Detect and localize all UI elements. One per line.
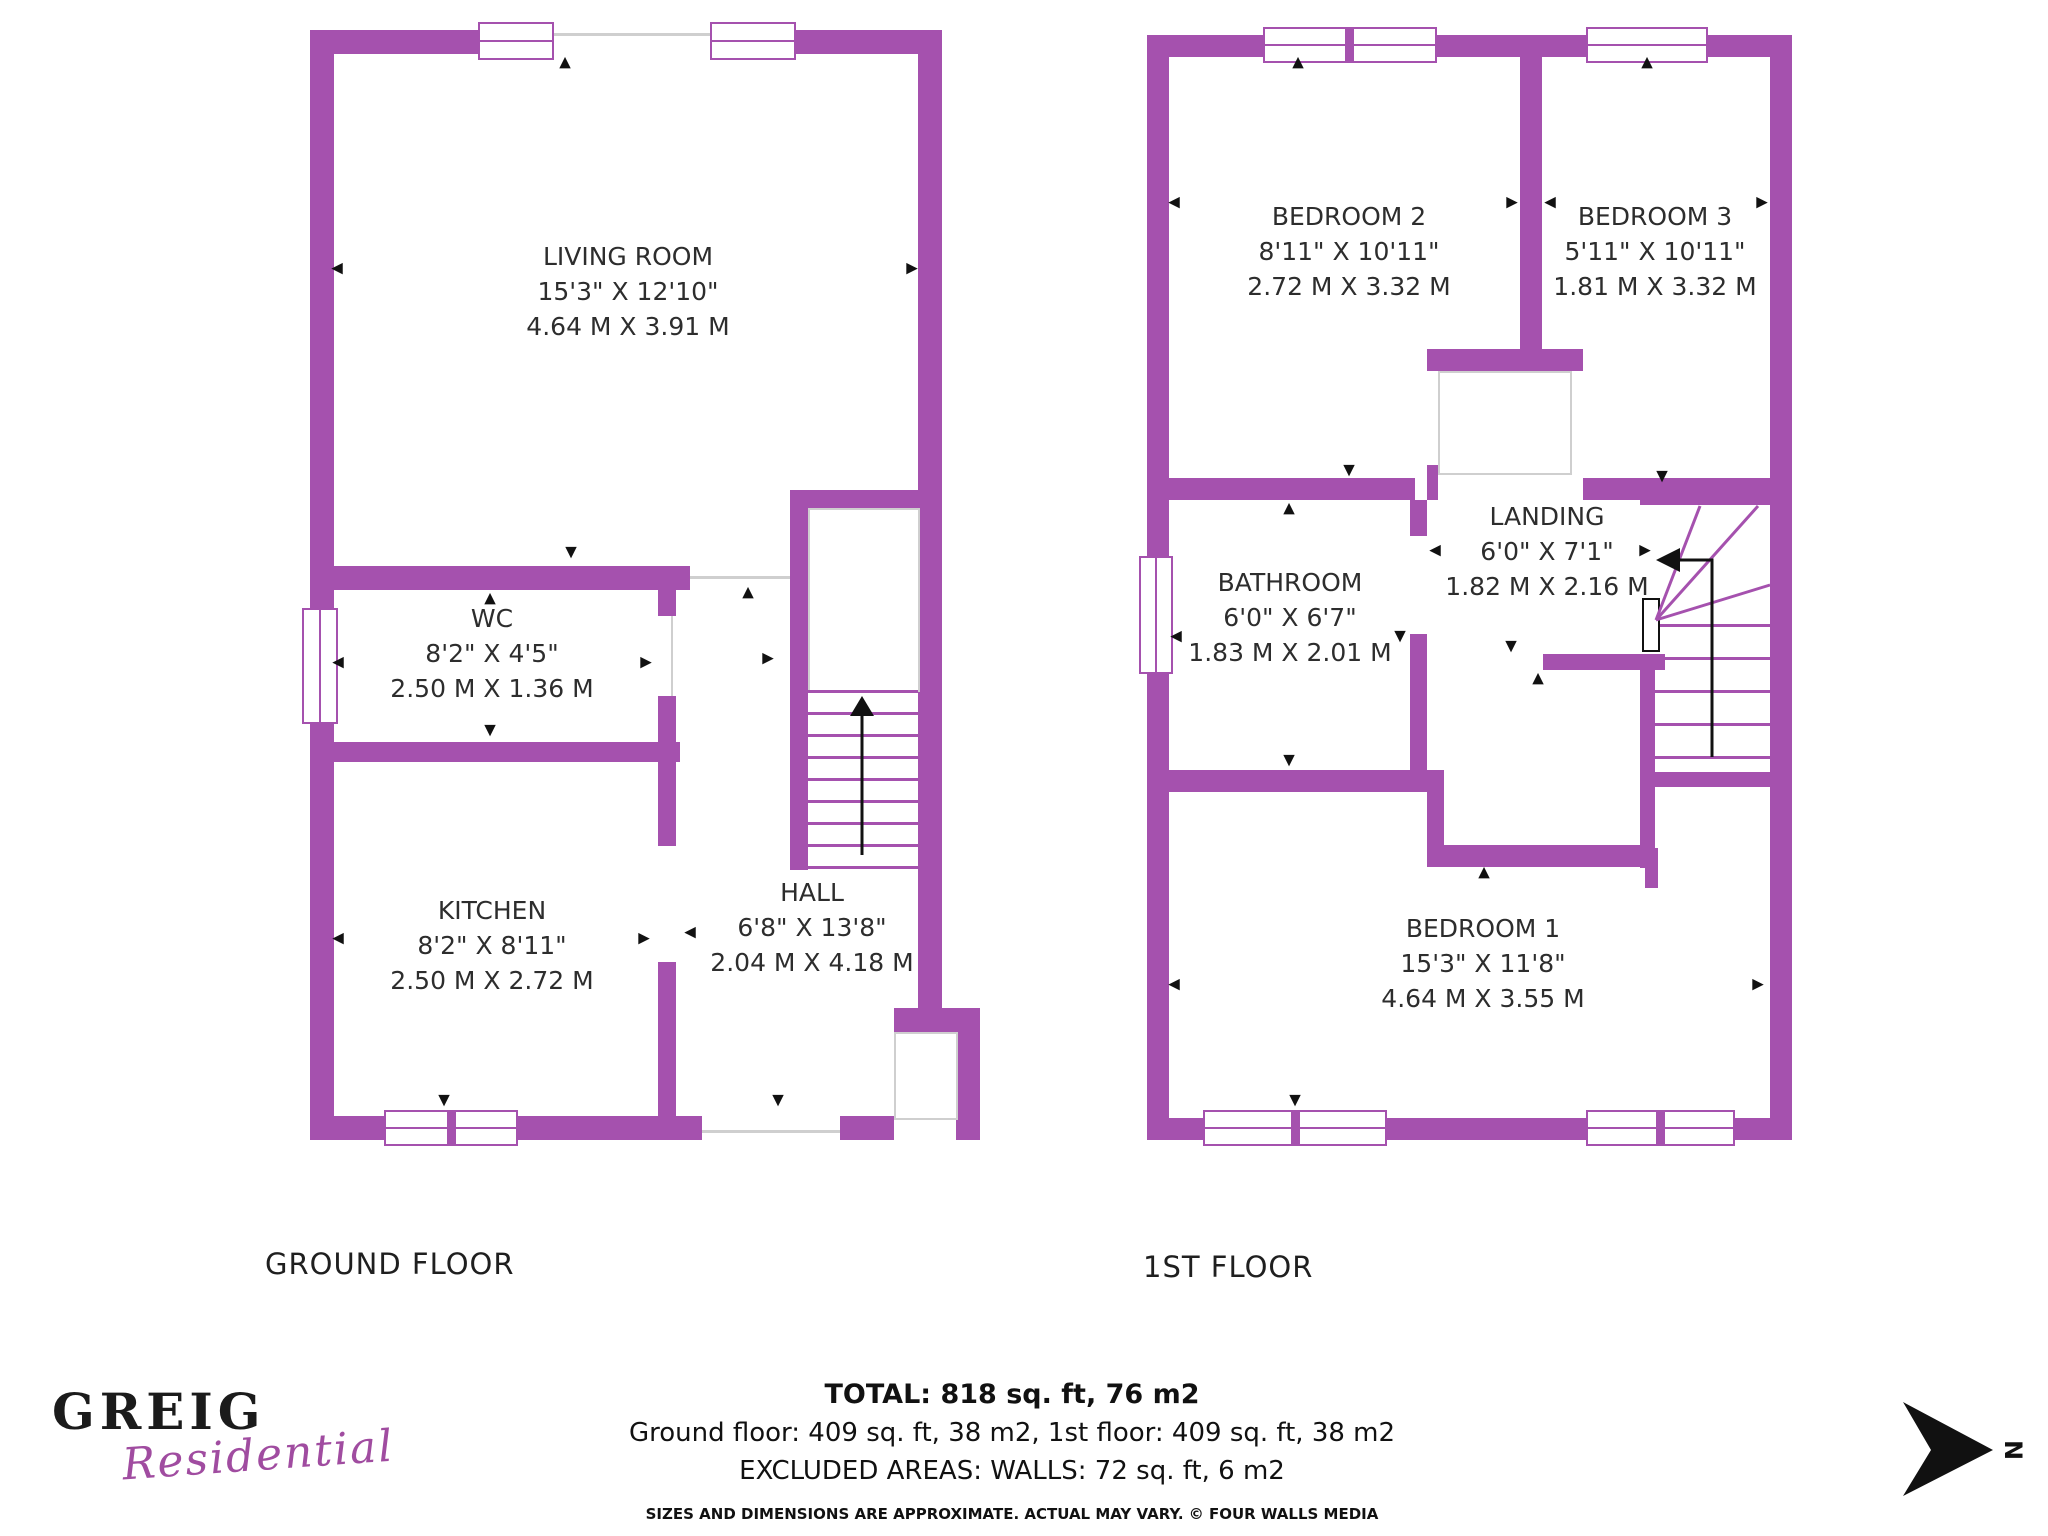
- wall: [1640, 490, 1770, 505]
- stair-tread: [1655, 657, 1770, 660]
- dimension-arrow: ▼: [1394, 629, 1406, 644]
- dimension-arrow: ◀: [332, 655, 344, 670]
- room-dim-metric: 4.64 M X 3.55 M: [1381, 981, 1584, 1016]
- room-name: BEDROOM 1: [1381, 912, 1584, 946]
- room-label-bedroom-3: BEDROOM 3 5'11" X 10'11" 1.81 M X 3.32 M: [1553, 200, 1756, 304]
- window: [384, 1110, 518, 1146]
- dimension-arrow: ▼: [1289, 1093, 1301, 1108]
- dimension-arrow: ▶: [1506, 195, 1518, 210]
- room-name: HALL: [710, 876, 913, 910]
- wall: [658, 590, 676, 616]
- total-area: TOTAL: 818 sq. ft, 76 m2: [629, 1376, 1395, 1414]
- room-label-wc: WC 8'2" X 4'5" 2.50 M X 1.36 M: [390, 602, 593, 706]
- first-floor-label: 1ST FLOOR: [1143, 1250, 1313, 1284]
- dimension-arrow: ▼: [565, 545, 577, 560]
- room-dim-metric: 2.72 M X 3.32 M: [1247, 269, 1450, 304]
- room-dim-metric: 1.83 M X 2.01 M: [1188, 635, 1391, 670]
- room-dim-imperial: 6'0" X 6'7": [1188, 600, 1391, 635]
- wall: [1147, 1118, 1205, 1140]
- wall: [310, 742, 680, 762]
- excluded-areas: EXCLUDED AREAS: WALLS: 72 sq. ft, 6 m2: [629, 1452, 1395, 1490]
- north-arrow-icon: [1895, 1392, 2000, 1502]
- room-label-hall: HALL 6'8" X 13'8" 2.04 M X 4.18 M: [710, 876, 913, 980]
- wall: [310, 566, 690, 590]
- dimension-arrow: ▲: [559, 55, 571, 70]
- wall: [1655, 772, 1770, 787]
- wall: [1385, 1118, 1588, 1140]
- room-label-kitchen: KITCHEN 8'2" X 8'11" 2.50 M X 2.72 M: [390, 894, 593, 998]
- dimension-arrow: ▼: [1505, 639, 1517, 654]
- dimension-arrow: ▲: [1292, 55, 1304, 70]
- dimension-arrow: ▲: [742, 585, 754, 600]
- wall: [1147, 478, 1415, 500]
- room-dim-imperial: 8'2" X 4'5": [390, 636, 593, 671]
- room-label-bedroom-2: BEDROOM 2 8'11" X 10'11" 2.72 M X 3.32 M: [1247, 200, 1450, 304]
- room-name: WC: [390, 602, 593, 636]
- room-dim-metric: 1.81 M X 3.32 M: [1553, 269, 1756, 304]
- dimension-arrow: ◀: [684, 925, 696, 940]
- room-name: LIVING ROOM: [526, 240, 729, 274]
- wall: [658, 696, 676, 846]
- wall: [1770, 35, 1792, 1140]
- wall: [1640, 654, 1655, 868]
- dimension-arrow: ▼: [1343, 463, 1355, 478]
- room-dim-imperial: 8'2" X 8'11": [390, 928, 593, 963]
- dimension-arrow: ◀: [1168, 195, 1180, 210]
- disclaimer: SIZES AND DIMENSIONS ARE APPROXIMATE. AC…: [629, 1504, 1395, 1524]
- stair-tread: [808, 734, 918, 737]
- stair-tread: [808, 844, 918, 847]
- window: [1586, 1110, 1735, 1146]
- room-dim-metric: 4.64 M X 3.91 M: [526, 309, 729, 344]
- wall: [1733, 1118, 1792, 1140]
- room-dim-imperial: 8'11" X 10'11": [1247, 234, 1450, 269]
- room-dim-metric: 2.50 M X 2.72 M: [390, 963, 593, 998]
- wall: [790, 508, 808, 870]
- dimension-arrow: ◀: [1429, 543, 1441, 558]
- wall: [1435, 35, 1588, 57]
- wall: [1427, 465, 1438, 500]
- stair-tread: [808, 756, 918, 759]
- dimension-arrow: ◀: [332, 931, 344, 946]
- window: [1203, 1110, 1387, 1146]
- room-name: BEDROOM 2: [1247, 200, 1450, 234]
- dimension-arrow: ▶: [640, 655, 652, 670]
- wall: [1427, 845, 1655, 867]
- stair-tread: [808, 822, 918, 825]
- wall: [516, 1116, 702, 1140]
- stair-void: [808, 508, 920, 692]
- wall: [1520, 35, 1542, 350]
- dimension-arrow: ▶: [906, 261, 918, 276]
- dimension-arrow: ◀: [1168, 977, 1180, 992]
- stair-tread: [808, 712, 918, 715]
- stair-tread: [1655, 624, 1770, 627]
- dimension-arrow: ▼: [438, 1093, 450, 1108]
- area-summary: TOTAL: 818 sq. ft, 76 m2 Ground floor: 4…: [629, 1376, 1395, 1524]
- wall: [1147, 770, 1427, 792]
- dimension-arrow: ▶: [1752, 977, 1764, 992]
- wall: [1645, 848, 1658, 888]
- porch-interior: [894, 1032, 958, 1120]
- room-dim-metric: 1.82 M X 2.16 M: [1445, 569, 1648, 604]
- wall: [1410, 500, 1427, 536]
- wall: [1427, 349, 1583, 371]
- stair-tread: [808, 778, 918, 781]
- stair-tread: [808, 800, 918, 803]
- stair-tread: [808, 866, 918, 869]
- room-dim-imperial: 15'3" X 12'10": [526, 274, 729, 309]
- dimension-arrow: ▲: [1532, 671, 1544, 686]
- dimension-arrow: ▼: [484, 723, 496, 738]
- room-name: BATHROOM: [1188, 566, 1391, 600]
- stair-bulkhead: [1438, 371, 1572, 475]
- door-line: [671, 616, 673, 696]
- dimension-arrow: ▲: [1478, 865, 1490, 880]
- wall: [918, 30, 942, 1012]
- floor-areas: Ground floor: 409 sq. ft, 38 m2, 1st flo…: [629, 1414, 1395, 1452]
- room-dim-imperial: 6'8" X 13'8": [710, 910, 913, 945]
- dimension-arrow: ▼: [1283, 753, 1295, 768]
- window: [1263, 27, 1437, 63]
- room-dim-metric: 2.50 M X 1.36 M: [390, 671, 593, 706]
- room-label-living-room: LIVING ROOM 15'3" X 12'10" 4.64 M X 3.91…: [526, 240, 729, 344]
- dimension-arrow: ◀: [331, 261, 343, 276]
- door-leaf: [1642, 598, 1660, 652]
- dimension-arrow: ▼: [772, 1093, 784, 1108]
- opening-line: [690, 576, 790, 579]
- window: [1139, 556, 1173, 674]
- wall: [310, 30, 480, 54]
- stair-tread: [1655, 756, 1770, 759]
- room-dim-imperial: 6'0" X 7'1": [1445, 534, 1648, 569]
- dimension-arrow: ◀: [1170, 629, 1182, 644]
- room-dim-imperial: 5'11" X 10'11": [1553, 234, 1756, 269]
- dimension-arrow: ▼: [1656, 469, 1668, 484]
- north-label: N: [1999, 1440, 2027, 1460]
- room-name: KITCHEN: [390, 894, 593, 928]
- dimension-arrow: ▶: [638, 931, 650, 946]
- window: [710, 22, 796, 60]
- room-dim-imperial: 15'3" X 11'8": [1381, 946, 1584, 981]
- wall: [310, 30, 334, 610]
- window: [478, 22, 554, 60]
- wall: [310, 1116, 386, 1140]
- wall: [1147, 672, 1169, 1140]
- wall: [790, 490, 942, 508]
- stair-tread: [808, 690, 918, 693]
- wall: [1410, 634, 1427, 792]
- stair-tread: [1655, 723, 1770, 726]
- north-arrow: N: [1895, 1392, 2045, 1512]
- room-name: LANDING: [1445, 500, 1648, 534]
- wall: [658, 962, 676, 1116]
- dimension-arrow: ▲: [1641, 55, 1653, 70]
- opening-line: [554, 33, 710, 36]
- room-label-bedroom-1: BEDROOM 1 15'3" X 11'8" 4.64 M X 3.55 M: [1381, 912, 1584, 1016]
- room-dim-metric: 2.04 M X 4.18 M: [710, 945, 913, 980]
- agency-logo: GREIG Residential: [52, 1382, 412, 1522]
- wall: [840, 1116, 894, 1140]
- dimension-arrow: ▶: [762, 651, 774, 666]
- wall: [310, 722, 334, 1140]
- stair-tread: [1655, 690, 1770, 693]
- room-name: BEDROOM 3: [1553, 200, 1756, 234]
- front-door-opening: [702, 1130, 840, 1133]
- room-label-landing: LANDING 6'0" X 7'1" 1.82 M X 2.16 M: [1445, 500, 1648, 604]
- porch-wall: [956, 1008, 980, 1140]
- room-label-bathroom: BATHROOM 6'0" X 6'7" 1.83 M X 2.01 M: [1188, 566, 1391, 670]
- floorplan-page: ▲ ◀ ▶ ▼ ▲ ◀ ▶ ▼ ◀ ▶ ▼ ◀ ▶ ▲ ▼ ▲ ◀ ▶ ▼ ◀ …: [0, 0, 2048, 1536]
- dimension-arrow: ▶: [1756, 195, 1768, 210]
- ground-floor-label: GROUND FLOOR: [265, 1247, 515, 1281]
- dimension-arrow: ▲: [1283, 501, 1295, 516]
